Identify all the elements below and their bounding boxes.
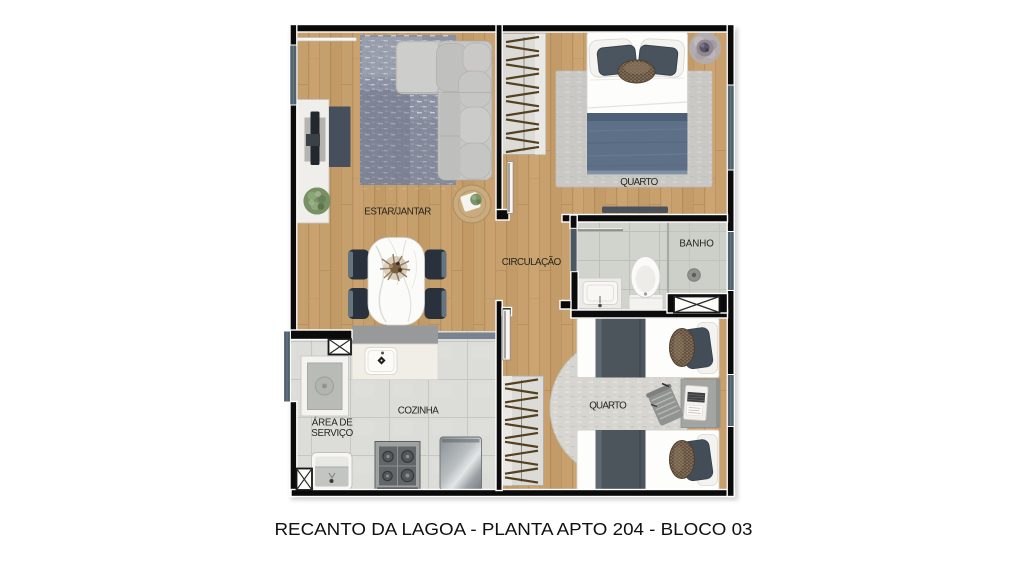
svg-text:RECANTO DA LAGOA - PLANTA APTO: RECANTO DA LAGOA - PLANTA APTO 204 - BLO… <box>275 519 753 539</box>
svg-text:ÁREA DE: ÁREA DE <box>312 417 353 428</box>
svg-text:CIRCULAÇÃO: CIRCULAÇÃO <box>502 257 562 268</box>
svg-text:COZINHA: COZINHA <box>398 406 439 417</box>
svg-text:QUARTO: QUARTO <box>589 401 627 412</box>
svg-text:ESTAR/JANTAR: ESTAR/JANTAR <box>364 207 431 218</box>
svg-text:SERVIÇO: SERVIÇO <box>311 428 353 439</box>
svg-text:BANHO: BANHO <box>679 239 714 250</box>
svg-text:QUARTO: QUARTO <box>620 177 658 188</box>
